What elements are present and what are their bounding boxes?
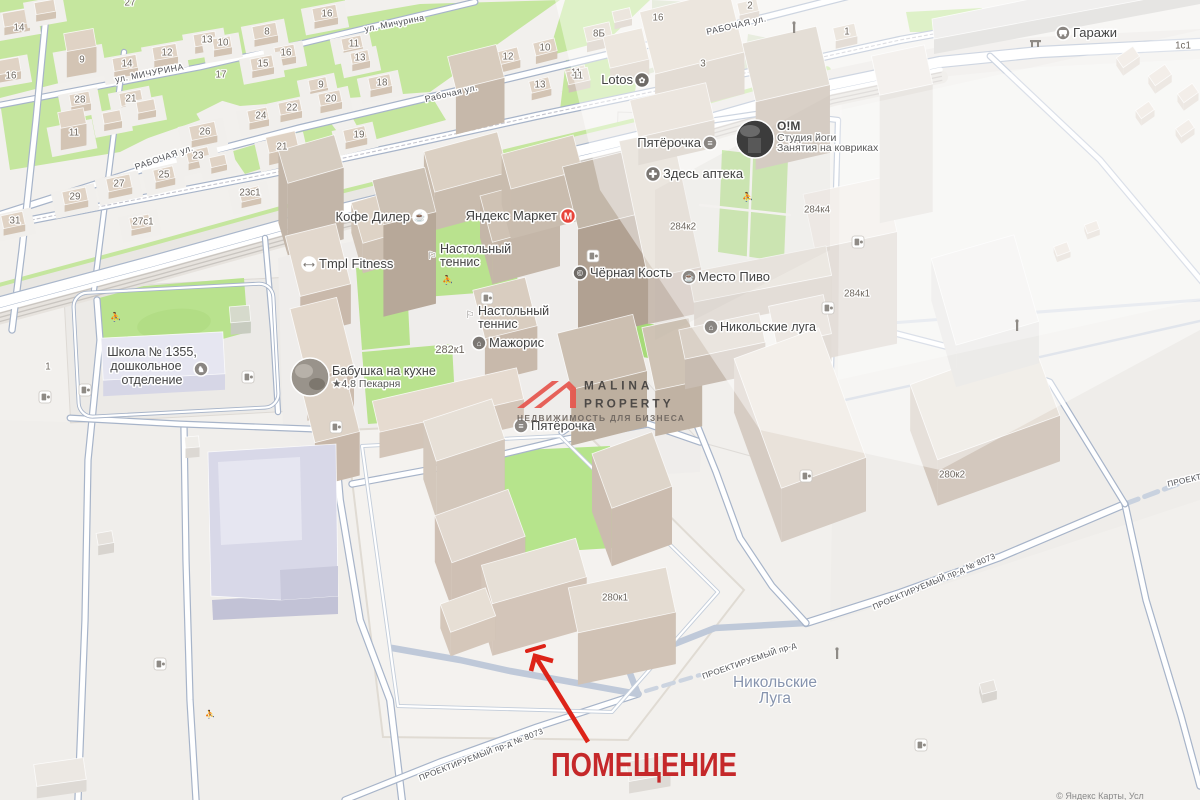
svg-text:10: 10 xyxy=(540,43,551,54)
svg-text:⛹: ⛹ xyxy=(110,311,121,322)
svg-text:282к1: 282к1 xyxy=(435,344,464,356)
svg-text:Никольские: Никольские xyxy=(733,674,817,691)
svg-text:284к1: 284к1 xyxy=(844,289,870,300)
svg-text:27с1: 27с1 xyxy=(132,217,153,228)
svg-text:25: 25 xyxy=(159,170,170,181)
svg-text:≡: ≡ xyxy=(707,138,712,148)
svg-text:14: 14 xyxy=(122,59,133,70)
svg-text:НЕДВИЖИМОСТЬ ДЛЯ БИЗНЕСА: НЕДВИЖИМОСТЬ ДЛЯ БИЗНЕСА xyxy=(517,413,685,423)
svg-text:Школа № 1355,: Школа № 1355, xyxy=(107,345,197,359)
svg-text:18: 18 xyxy=(377,78,388,89)
svg-text:теннис: теннис xyxy=(478,317,518,331)
svg-text:16: 16 xyxy=(653,13,664,24)
svg-text:★4,8 Пекарня: ★4,8 Пекарня xyxy=(332,378,400,390)
svg-text:ПОМЕЩЕНИЕ: ПОМЕЩЕНИЕ xyxy=(551,748,737,784)
svg-text:280к2: 280к2 xyxy=(939,470,965,481)
svg-text:Мажорис: Мажорис xyxy=(489,335,545,350)
svg-text:9: 9 xyxy=(318,80,323,91)
svg-text:31: 31 xyxy=(10,216,21,227)
svg-text:284к4: 284к4 xyxy=(804,205,831,216)
svg-text:⛹: ⛹ xyxy=(205,709,215,719)
svg-text:27: 27 xyxy=(114,179,125,190)
svg-text:280к1: 280к1 xyxy=(602,593,628,604)
svg-text:3: 3 xyxy=(700,59,706,70)
svg-text:Луга: Луга xyxy=(759,690,791,707)
svg-text:Кофе Дилер: Кофе Дилер xyxy=(336,209,410,224)
svg-text:16: 16 xyxy=(322,9,333,20)
svg-text:Настольный: Настольный xyxy=(440,242,511,256)
svg-text:26: 26 xyxy=(200,127,211,138)
svg-text:⚐: ⚐ xyxy=(428,251,437,262)
svg-text:М: М xyxy=(564,212,572,223)
svg-text:8: 8 xyxy=(264,27,270,38)
svg-text:29: 29 xyxy=(70,192,81,203)
svg-text:13: 13 xyxy=(535,80,546,91)
svg-text:24: 24 xyxy=(256,111,267,122)
svg-text:♞: ♞ xyxy=(197,365,204,374)
svg-text:11: 11 xyxy=(349,39,359,50)
svg-text:теннис: теннис xyxy=(440,255,480,269)
svg-text:21: 21 xyxy=(126,94,137,105)
svg-text:20: 20 xyxy=(326,94,337,105)
svg-text:1: 1 xyxy=(45,362,50,373)
svg-text:отделение: отделение xyxy=(122,373,183,387)
svg-text:16: 16 xyxy=(281,48,292,59)
svg-text:1с1: 1с1 xyxy=(1175,41,1191,52)
svg-text:⌂: ⌂ xyxy=(477,339,482,348)
svg-text:O!M: O!M xyxy=(777,119,800,133)
svg-text:☕: ☕ xyxy=(684,272,694,282)
svg-text:284к2: 284к2 xyxy=(670,222,696,233)
svg-text:10: 10 xyxy=(218,38,229,49)
svg-text:2: 2 xyxy=(747,1,752,12)
svg-text:©: © xyxy=(577,269,583,278)
svg-text:Здесь аптека: Здесь аптека xyxy=(663,166,744,181)
svg-text:Занятия на ковриках: Занятия на ковриках xyxy=(777,142,879,154)
svg-text:13: 13 xyxy=(202,35,213,46)
svg-text:23с1: 23с1 xyxy=(239,188,260,199)
svg-text:Бабушка на кухне: Бабушка на кухне xyxy=(332,364,436,378)
svg-text:22: 22 xyxy=(287,103,298,114)
svg-text:✚: ✚ xyxy=(649,170,658,181)
svg-text:дошкольное: дошкольное xyxy=(110,359,181,373)
svg-text:28: 28 xyxy=(75,95,86,106)
svg-text:Гаражи: Гаражи xyxy=(1073,25,1117,40)
svg-text:Пятёрочка: Пятёрочка xyxy=(637,135,701,150)
svg-text:Lotos: Lotos xyxy=(601,72,633,87)
svg-text:Чёрная Кость: Чёрная Кость xyxy=(590,265,672,280)
svg-text:⚐: ⚐ xyxy=(466,310,475,321)
svg-text:27: 27 xyxy=(125,0,136,9)
svg-text:12: 12 xyxy=(503,52,514,63)
svg-text:© Яндекс Карты, Усл: © Яндекс Карты, Усл xyxy=(1056,791,1143,800)
svg-text:Место Пиво: Место Пиво xyxy=(698,269,770,284)
svg-text:15: 15 xyxy=(258,59,269,70)
svg-text:8Б: 8Б xyxy=(593,29,605,40)
svg-text:⌂: ⌂ xyxy=(709,323,714,332)
svg-text:13: 13 xyxy=(355,53,366,64)
svg-text:14: 14 xyxy=(14,23,25,34)
svg-text:11: 11 xyxy=(573,71,583,82)
svg-text:Настольный: Настольный xyxy=(478,304,549,318)
svg-text:PROPERTY: PROPERTY xyxy=(584,397,674,411)
svg-text:11: 11 xyxy=(69,128,79,139)
svg-text:17: 17 xyxy=(216,70,227,81)
svg-text:23: 23 xyxy=(193,151,204,162)
svg-text:☕: ☕ xyxy=(414,211,425,222)
svg-text:12: 12 xyxy=(162,48,173,59)
svg-text:⛹: ⛹ xyxy=(742,191,753,202)
svg-text:⟷: ⟷ xyxy=(303,260,315,269)
svg-text:✿: ✿ xyxy=(639,76,646,85)
svg-text:9: 9 xyxy=(79,55,84,66)
svg-text:Tmpl Fitness: Tmpl Fitness xyxy=(319,256,394,271)
svg-text:Никольские луга: Никольские луга xyxy=(720,320,816,334)
svg-text:19: 19 xyxy=(354,130,365,141)
svg-text:MALINA: MALINA xyxy=(584,379,653,393)
svg-text:21: 21 xyxy=(277,142,288,153)
svg-text:⛹: ⛹ xyxy=(442,274,453,285)
svg-text:Яндекс Маркет: Яндекс Маркет xyxy=(466,208,557,223)
svg-text:16: 16 xyxy=(6,71,17,82)
svg-text:1: 1 xyxy=(844,27,849,38)
